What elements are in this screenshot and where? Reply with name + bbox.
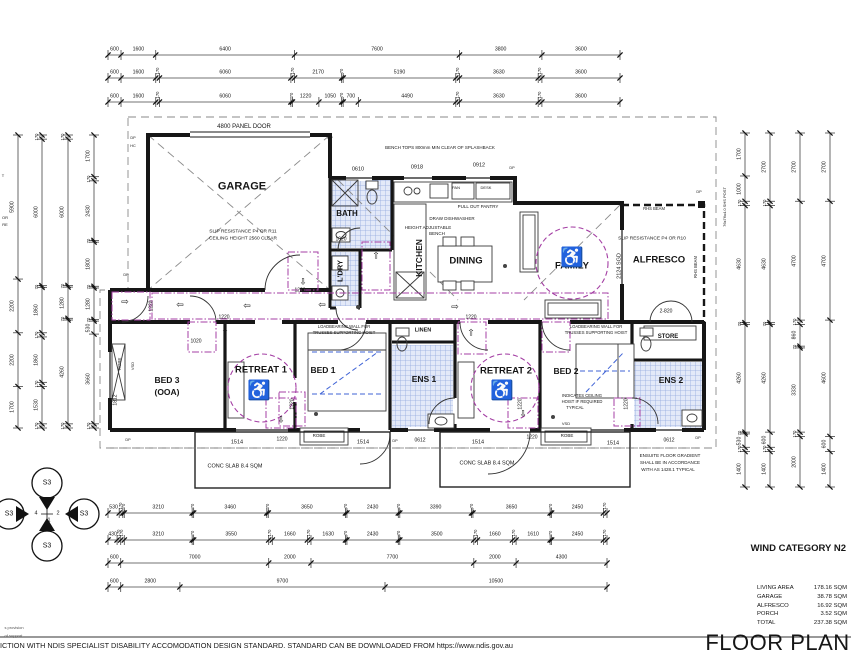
area-label: TOTAL (757, 619, 775, 628)
elevation-marker (0, 468, 99, 561)
ndis-footer-note: ICTION WITH NDIS SPECIALIST DISABILITY A… (0, 641, 513, 650)
area-label: ALFRESCO (757, 602, 789, 611)
concrete-slabs (110, 432, 700, 488)
area-label: LIVING AREA (757, 584, 794, 593)
area-value: 237.38 SQM (814, 619, 847, 628)
area-row: ALFRESCO 16.92 SQM (757, 602, 847, 611)
area-value: 16.92 SQM (817, 602, 847, 611)
wet-area-hatching (332, 180, 702, 428)
area-label: PORCH (757, 610, 778, 619)
area-value: 38.78 SQM (817, 593, 847, 602)
floor-plan-sheet: GARAGEBATHL'DRYKITCHENDININGFAMILYALFRES… (0, 0, 851, 658)
area-row: GARAGE 38.78 SQM (757, 593, 847, 602)
area-row: LIVING AREA 178.16 SQM (757, 584, 847, 593)
area-value: 3.52 SQM (820, 610, 847, 619)
area-value: 178.16 SQM (814, 584, 847, 593)
area-schedule: LIVING AREA 178.16 SQM GARAGE 38.78 SQM … (757, 584, 847, 628)
area-label: GARAGE (757, 593, 782, 602)
area-row: PORCH 3.52 SQM (757, 610, 847, 619)
floor-plan-drawing (0, 0, 851, 658)
area-row: TOTAL 237.38 SQM (757, 619, 847, 628)
wind-category-note: WIND CATEGORY N2 (700, 543, 846, 554)
sheet-title: FLOOR PLAN (704, 630, 851, 656)
